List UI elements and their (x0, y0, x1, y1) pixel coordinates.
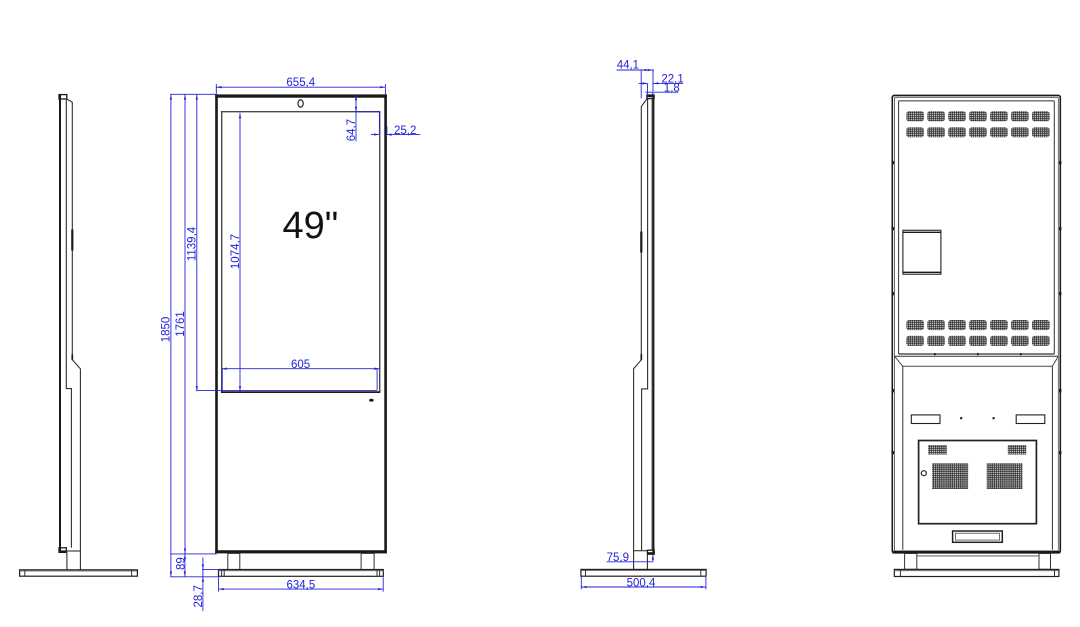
svg-text:28,7: 28,7 (193, 585, 205, 607)
svg-text:1850: 1850 (161, 317, 173, 343)
svg-text:605: 605 (291, 359, 310, 371)
svg-text:25,2: 25,2 (394, 125, 416, 137)
svg-text:1,8: 1,8 (664, 83, 680, 95)
svg-text:1074,7: 1074,7 (230, 234, 242, 269)
svg-text:634,5: 634,5 (287, 580, 316, 592)
svg-text:64,7: 64,7 (346, 119, 358, 141)
svg-text:655,4: 655,4 (286, 77, 315, 89)
svg-text:1761: 1761 (175, 311, 187, 337)
svg-text:49": 49" (283, 205, 339, 247)
svg-text:1139,4: 1139,4 (186, 226, 198, 261)
svg-text:89: 89 (175, 557, 187, 570)
svg-text:500,4: 500,4 (627, 578, 656, 590)
